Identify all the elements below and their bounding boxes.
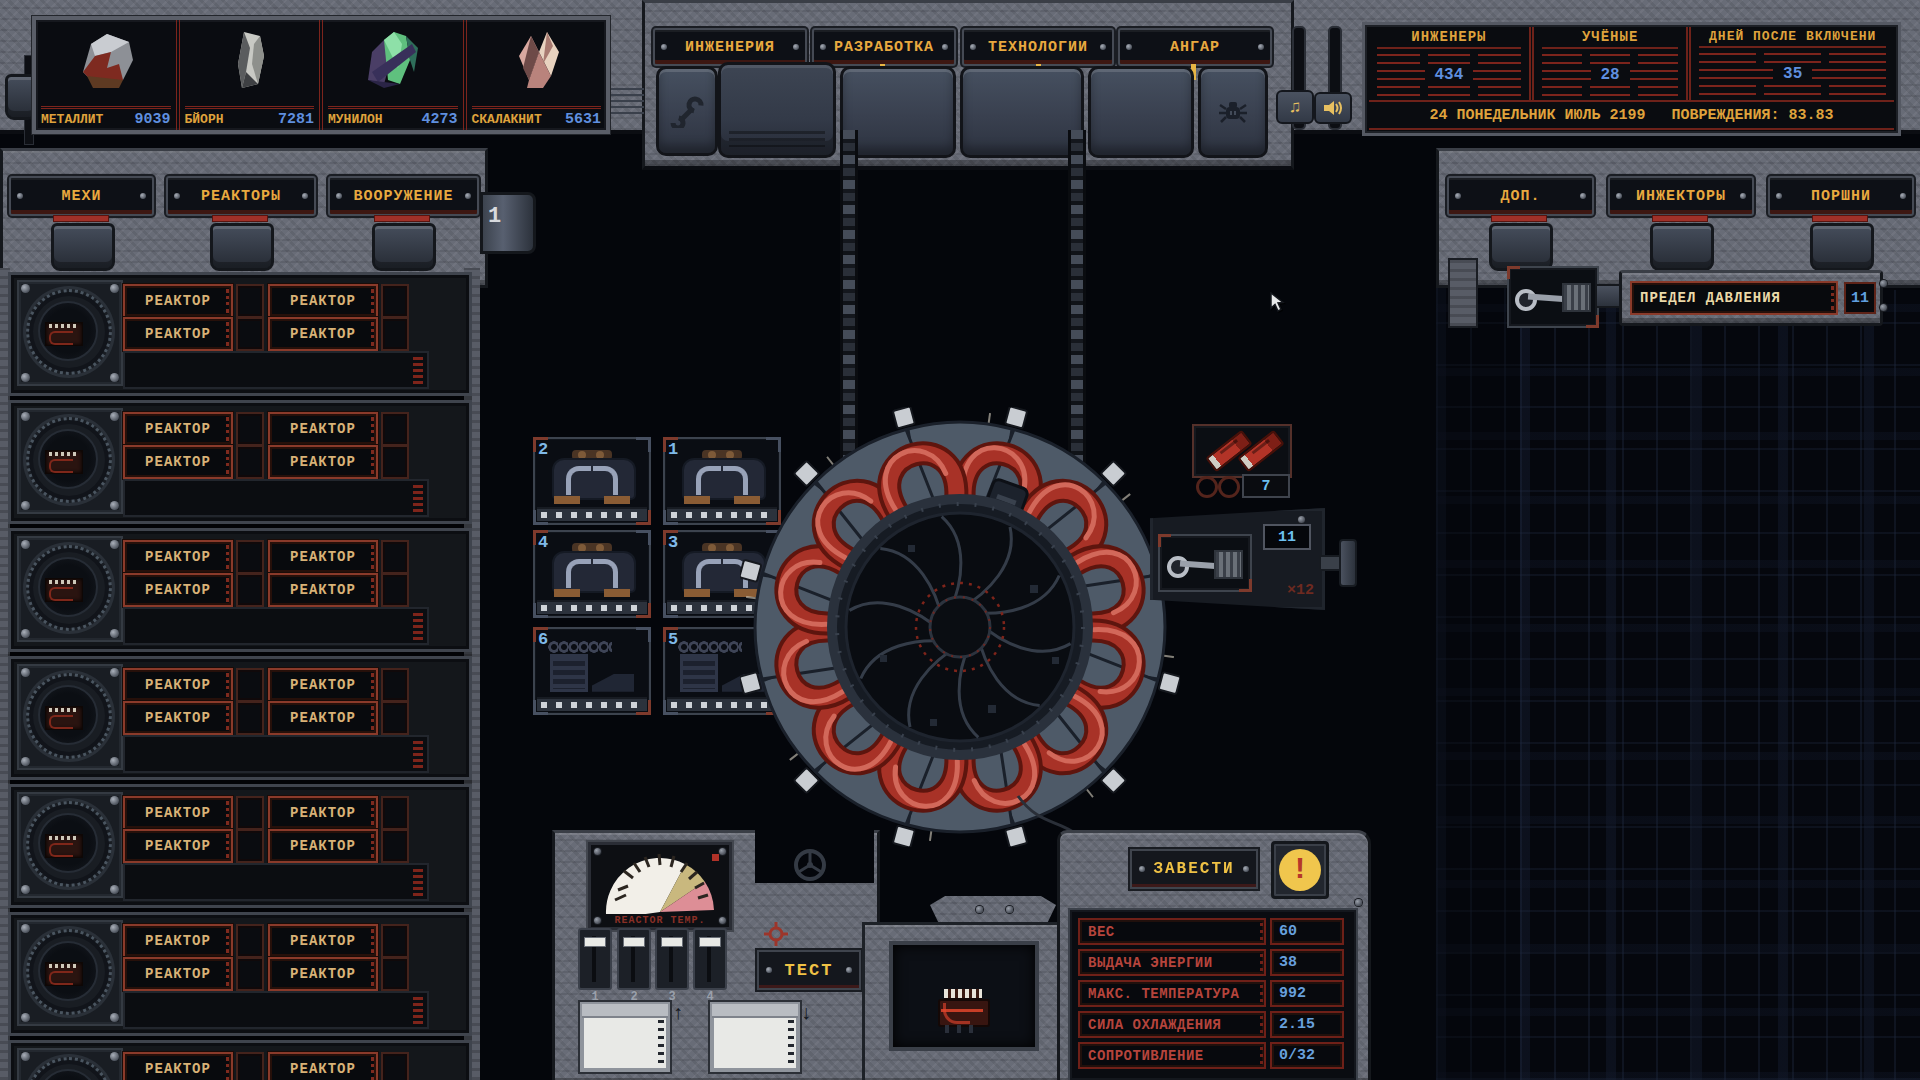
stat-value: 2.15	[1270, 1011, 1344, 1038]
injector-count: 7	[1242, 474, 1290, 498]
tab-label: ВООРУЖЕНИЕ	[353, 188, 453, 205]
reactor-thumbnail-icon	[45, 322, 83, 346]
monitor-screen	[889, 941, 1039, 1051]
slot-connector	[236, 957, 264, 991]
slot-connector	[381, 284, 409, 318]
tab-lamp	[1812, 215, 1868, 222]
reactor-row-tray	[123, 607, 429, 645]
sound-toggle-button[interactable]	[1314, 92, 1352, 124]
key-item-icon	[1165, 545, 1243, 581]
slot-connector	[236, 924, 264, 958]
lever-switch-2[interactable]: 2	[617, 928, 651, 990]
slot-connector	[381, 1052, 409, 1080]
slot-connector	[381, 540, 409, 574]
tab-lamp	[212, 215, 268, 222]
reactor-slot-button[interactable]: РЕАКТОР	[123, 668, 233, 702]
key-item-frame	[1158, 534, 1252, 592]
resource-value: 4273	[421, 111, 457, 128]
reactor-slot-label: РЕАКТОР	[145, 933, 211, 949]
reactor-slot-button[interactable]: РЕАКТОР	[123, 829, 233, 863]
reactor-slot-label: РЕАКТОР	[290, 1061, 356, 1077]
resource-name: СКАЛАКНИТ	[472, 112, 542, 127]
background-machinery-strip	[1436, 286, 1520, 1080]
engineers-label: ИНЖЕНЕРЫ	[1377, 29, 1521, 49]
reactor-row: РЕАКТОР РЕАКТОР РЕАКТОР РЕАКТОР	[8, 400, 472, 524]
slot-connector	[236, 540, 264, 574]
music-toggle-button[interactable]: ♫	[1276, 90, 1314, 124]
damage-label: ПОВРЕЖДЕНИЯ:	[1671, 107, 1779, 124]
lever-switch-4[interactable]: 4	[693, 928, 727, 990]
resource-skalaknit[interactable]: СКАЛАКНИТ 5631	[467, 20, 607, 130]
scientists-column: УЧЁНЫЕ 28	[1534, 27, 1692, 100]
reactor-slot-button[interactable]: РЕАКТОР	[268, 540, 378, 574]
days-label: ДНЕЙ ПОСЛЕ ВКЛЮЧЕНИ	[1699, 29, 1886, 48]
warning-icon: !	[1279, 849, 1321, 891]
tab-technologies[interactable]: ТЕХНОЛОГИИ	[962, 28, 1114, 66]
slot-connector	[381, 668, 409, 702]
slot-connector	[236, 829, 264, 863]
reactor-portrait[interactable]	[17, 536, 123, 642]
valve-wheel-icon[interactable]	[788, 846, 832, 884]
reactor-slot-label: РЕАКТОР	[290, 933, 356, 949]
reactor-slot-button[interactable]: РЕАКТОР	[268, 573, 378, 607]
reactor-stats-table: ВЕС 60 ВЫДАЧА ЭНЕРГИИ 38 МАКС. ТЕМПЕРАТУ…	[1068, 908, 1358, 1080]
reactor-row: РЕАКТОР РЕАКТОР РЕАКТОР РЕАКТОР	[8, 912, 472, 1036]
slot-connector	[236, 1052, 264, 1080]
tab-reactors[interactable]: РЕАКТОРЫ	[166, 176, 316, 216]
tab-hangar[interactable]: АНГАР	[1118, 28, 1272, 66]
reactor-slot-button[interactable]: РЕАКТОР	[268, 317, 378, 351]
slot-connector	[381, 445, 409, 479]
speaker-icon	[1323, 100, 1343, 116]
scientists-label: УЧЁНЫЕ	[1542, 29, 1679, 49]
reactor-thumbnail-icon	[45, 834, 83, 858]
lever-switch-3[interactable]: 3	[655, 928, 689, 990]
reactor-slot-button[interactable]: РЕАКТОР	[123, 957, 233, 991]
component-slot[interactable]: 2	[533, 437, 651, 525]
resource-bjorn[interactable]: БЙОРН 7281	[180, 20, 324, 130]
engine-component-icon	[546, 450, 638, 506]
tab-label: ИНЖЕНЕРИЯ	[685, 39, 775, 56]
key-multiplier: ×12	[1287, 582, 1314, 599]
slot-connector	[381, 317, 409, 351]
resource-name: БЙОРН	[185, 112, 224, 127]
target-indicator-icon	[764, 922, 788, 946]
reactor-portrait[interactable]	[17, 408, 123, 514]
damage-value: 83.83	[1789, 107, 1834, 124]
slot-track	[537, 600, 647, 614]
reactor-slot-label: РЕАКТОР	[145, 293, 211, 309]
mouse-cursor	[1270, 292, 1286, 314]
stat-value: 60	[1270, 918, 1344, 945]
reactor-slot-button[interactable]: РЕАКТОР	[268, 796, 378, 830]
reactor-slot-label: РЕАКТОР	[290, 326, 356, 342]
slot-connector	[236, 445, 264, 479]
resource-name: МУНИЛОН	[328, 112, 383, 127]
reactor-slot-label: РЕАКТОР	[290, 293, 356, 309]
reactor-slot-button[interactable]: РЕАКТОР	[268, 924, 378, 958]
slot-track	[537, 697, 647, 711]
reactor-slot-label: РЕАКТОР	[145, 549, 211, 565]
reactor-slot-label: РЕАКТОР	[290, 549, 356, 565]
tool-button-3[interactable]	[960, 66, 1084, 158]
tab-pull-handle[interactable]	[1810, 223, 1874, 271]
tab-label: ИНЖЕКТОРЫ	[1636, 188, 1726, 205]
reactor-row: РЕАКТОР РЕАКТОР РЕАКТОР РЕАКТОР	[8, 528, 472, 652]
game-date: 24 ПОНЕДЕЛЬНИК ИЮЛЬ 2199	[1429, 107, 1645, 124]
resource-value: 7281	[278, 111, 314, 128]
reactor-portrait[interactable]	[17, 664, 123, 770]
slot-connector	[381, 957, 409, 991]
tab-label: ПОРШНИ	[1811, 188, 1871, 205]
tab-lamp	[374, 215, 430, 222]
warning-button[interactable]: !	[1271, 841, 1329, 899]
tab-pull-handle[interactable]	[372, 223, 436, 271]
reactor-row-tray	[123, 351, 429, 389]
reactor-portrait[interactable]	[17, 1048, 123, 1080]
reactor-slot-button[interactable]: РЕАКТОР	[268, 445, 378, 479]
background-machinery	[1520, 290, 1920, 1080]
stat-label: ВЫДАЧА ЭНЕРГИИ	[1078, 949, 1266, 976]
coil-component-icon	[546, 640, 638, 696]
reactor-workshop-screen: МЕТАЛЛИТ 9039 БЙОРН 7281	[0, 0, 1920, 1080]
tab-label: ТЕХНОЛОГИИ	[988, 39, 1088, 56]
page-number: 1	[488, 204, 501, 229]
tab-lamp	[1652, 215, 1708, 222]
reactor-row: РЕАКТОР РЕАКТОР РЕАКТОР РЕАКТОР	[8, 784, 472, 908]
slot-connector	[236, 796, 264, 830]
component-slot[interactable]: 4	[533, 530, 651, 618]
injector-supply-box[interactable]	[1192, 424, 1292, 478]
reactor-temp-gauge: REACTOR TEMP.	[588, 842, 732, 930]
reactor-slot-button[interactable]: РЕАКТОР	[268, 957, 378, 991]
skalaknit-shard-icon	[507, 28, 565, 94]
reactor-portrait[interactable]	[17, 280, 123, 386]
munilon-crystal-icon	[360, 28, 426, 94]
reactor-slot-label: РЕАКТОР	[290, 582, 356, 598]
stat-value: 38	[1270, 949, 1344, 976]
slot-connector	[381, 412, 409, 446]
start-button-label: ЗАВЕСТИ	[1153, 860, 1234, 878]
engineers-column: ИНЖЕНЕРЫ 434	[1369, 27, 1534, 100]
tab-engineering[interactable]: ИНЖЕНЕРИЯ	[653, 28, 807, 66]
reactor-slot-button[interactable]: РЕАКТОР	[268, 284, 378, 318]
tab-pull-handle[interactable]	[1489, 223, 1553, 271]
days-value: 35	[1781, 68, 1804, 80]
reactor-thumbnail-icon	[45, 706, 83, 730]
key-item-wedge[interactable]: 11 ×12	[1150, 508, 1325, 610]
reactor-slot-label: РЕАКТОР	[145, 677, 211, 693]
reactor-slot-label: РЕАКТОР	[145, 1061, 211, 1077]
injector-item-box[interactable]	[1507, 266, 1599, 328]
gasket-icon	[1218, 476, 1240, 498]
side-strip	[1448, 258, 1478, 328]
date-damage-line: 24 ПОНЕДЕЛЬНИК ИЮЛЬ 2199 ПОВРЕЖДЕНИЯ: 83…	[1369, 100, 1894, 130]
resource-value: 9039	[134, 111, 170, 128]
reactor-slot-label: РЕАКТОР	[145, 838, 211, 854]
key-item-handle[interactable]	[1319, 539, 1355, 583]
injector-count-value: 7	[1261, 478, 1270, 495]
reactor-slot-label: РЕАКТОР	[290, 421, 356, 437]
stat-value: 992	[1270, 980, 1344, 1007]
reactor-thumbnail-icon	[45, 962, 83, 986]
slot-connector	[236, 284, 264, 318]
tab-label: ДОП.	[1500, 188, 1540, 205]
gauge-dial	[594, 848, 726, 914]
tool-button-4[interactable]	[1088, 66, 1194, 158]
slot-connector	[236, 668, 264, 702]
tab-label: МЕХИ	[61, 188, 101, 205]
start-button[interactable]: ЗАВЕСТИ	[1130, 849, 1258, 889]
slot-connector	[381, 573, 409, 607]
wrench-tool-button[interactable]	[656, 66, 718, 156]
metallit-ore-icon	[75, 28, 137, 94]
gauge-label: REACTOR TEMP.	[591, 915, 729, 926]
reactor-row: РЕАКТОР РЕАКТОР РЕАКТОР РЕАКТОР	[8, 272, 472, 396]
bjorn-ore-icon	[218, 28, 280, 94]
lever-switch-1[interactable]: 1	[578, 928, 612, 990]
resource-metallit[interactable]: МЕТАЛЛИТ 9039	[36, 20, 180, 130]
tab-pull-handle[interactable]	[1650, 223, 1714, 271]
resource-munilon[interactable]: МУНИЛОН 4273	[323, 20, 467, 130]
tab-pistons[interactable]: ПОРШНИ	[1768, 176, 1914, 216]
resources-panel: МЕТАЛЛИТ 9039 БЙОРН 7281	[32, 16, 610, 134]
reactor-row-tray	[123, 863, 429, 901]
stat-label: МАКС. ТЕМПЕРАТУРА	[1078, 980, 1266, 1007]
reactor-slot-label: РЕАКТОР	[145, 421, 211, 437]
reactor-slot-button[interactable]: РЕАКТОР	[268, 1052, 378, 1080]
reactor-slot-button[interactable]: РЕАКТОР	[123, 701, 233, 735]
reactor-slot-button[interactable]: РЕАКТОР	[123, 796, 233, 830]
reactor-monitor	[862, 922, 1060, 1080]
reactor-slot-button[interactable]: РЕАКТОР	[123, 445, 233, 479]
reactor-row: РЕАКТОР РЕАКТОР РЕАКТОР РЕАКТОР	[8, 1040, 472, 1080]
reactor-slot-label: РЕАКТОР	[290, 710, 356, 726]
tab-label: РАЗРАБОТКА	[834, 39, 934, 56]
slot-connector	[236, 701, 264, 735]
gasket-icon	[1196, 476, 1218, 498]
reactor-sprite-icon	[935, 985, 991, 1033]
log-pad-right[interactable]	[710, 1002, 800, 1072]
damage-readout: ПОВРЕЖДЕНИЯ: 83.83	[1671, 107, 1833, 124]
reactor-slot-button[interactable]: РЕАКТОР	[123, 284, 233, 318]
reactor-row: РЕАКТОР РЕАКТОР РЕАКТОР РЕАКТОР	[8, 656, 472, 780]
arrow-up-icon[interactable]: ↑	[672, 1002, 684, 1025]
screw	[1880, 304, 1887, 311]
reactor-slot-label: РЕАКТОР	[290, 966, 356, 982]
wrench-icon	[670, 94, 704, 128]
tab-mechs[interactable]: МЕХИ	[9, 176, 154, 216]
tab-label: АНГАР	[1170, 39, 1220, 56]
engine-component-icon	[546, 543, 638, 599]
reactor-slot-label: РЕАКТОР	[290, 454, 356, 470]
reactor-slot-button[interactable]: РЕАКТОР	[123, 573, 233, 607]
tab-lamp	[1491, 215, 1547, 222]
reactor-slot-label: РЕАКТОР	[290, 677, 356, 693]
scientists-value: 28	[1599, 69, 1622, 81]
key-item-value-text: 11	[1278, 529, 1296, 546]
reactor-thumbnail-icon	[45, 578, 83, 602]
reactor-portrait[interactable]	[17, 920, 123, 1026]
injector-item-icon	[1513, 278, 1591, 314]
tab-lamp	[53, 215, 109, 222]
reactor-wheel[interactable]	[740, 407, 1180, 847]
reactor-slot-button[interactable]: РЕАКТОР	[268, 668, 378, 702]
tab-pull-handle[interactable]	[210, 223, 274, 271]
reactor-slot-label: РЕАКТОР	[145, 710, 211, 726]
reactor-slot-button[interactable]: РЕАКТОР	[123, 924, 233, 958]
slot-track	[537, 507, 647, 521]
reactor-slot-label: РЕАКТОР	[145, 805, 211, 821]
slot-connector	[236, 412, 264, 446]
slot-connector	[381, 829, 409, 863]
pressure-limit-row: ПРЕДЕЛ ДАВЛЕНИЯ 11	[1619, 270, 1883, 326]
page-tag[interactable]: 1	[480, 192, 536, 254]
engineers-value: 434	[1433, 69, 1466, 81]
slot-connector	[236, 317, 264, 351]
log-pad-left[interactable]	[580, 1002, 670, 1072]
tab-label: РЕАКТОРЫ	[201, 188, 281, 205]
slot-connector	[381, 701, 409, 735]
tool-button-active[interactable]	[718, 62, 836, 158]
pressure-limit-label: ПРЕДЕЛ ДАВЛЕНИЯ	[1630, 281, 1838, 315]
status-panel: ИНЖЕНЕРЫ 434 УЧЁНЫЕ 28 ДНЕЙ ПОСЛЕ ВКЛЮЧЕ…	[1362, 22, 1901, 136]
stat-label: СОПРОТИВЛЕНИЕ	[1078, 1042, 1266, 1069]
stat-label: СИЛА ОХЛАЖДЕНИЯ	[1078, 1011, 1266, 1038]
screw	[1880, 280, 1887, 287]
pressure-limit-value[interactable]: 11	[1844, 282, 1876, 314]
stat-value: 0/32	[1270, 1042, 1344, 1069]
reactor-thumbnail-icon	[45, 450, 83, 474]
reactor-slot-label: РЕАКТОР	[145, 966, 211, 982]
reactor-slot-button[interactable]: РЕАКТОР	[123, 317, 233, 351]
reactor-slot-button[interactable]: РЕАКТОР	[268, 829, 378, 863]
arrow-down-icon[interactable]: ↓	[800, 1002, 812, 1025]
tab-pull-handle[interactable]	[51, 223, 115, 271]
reactor-row-tray	[123, 735, 429, 773]
key-item-value: 11	[1263, 524, 1311, 550]
slot-connector	[381, 796, 409, 830]
resource-name: МЕТАЛЛИТ	[41, 112, 103, 127]
slot-connector	[236, 573, 264, 607]
reactor-slot-label: РЕАКТОР	[290, 805, 356, 821]
days-column: ДНЕЙ ПОСЛЕ ВКЛЮЧЕНИ 35	[1691, 27, 1894, 100]
reactor-slot-label: РЕАКТОР	[290, 838, 356, 854]
reactor-row-tray	[123, 479, 429, 517]
reactor-slot-button[interactable]: РЕАКТОР	[268, 701, 378, 735]
reactor-slot-button[interactable]: РЕАКТОР	[123, 540, 233, 574]
slot-connector	[381, 924, 409, 958]
reactor-slot-button[interactable]: РЕАКТОР	[123, 1052, 233, 1080]
tab-injectors[interactable]: ИНЖЕКТОРЫ	[1608, 176, 1754, 216]
reactor-row-tray	[123, 991, 429, 1029]
tab-development[interactable]: РАЗРАБОТКА	[812, 28, 956, 66]
tab-weapons[interactable]: ВООРУЖЕНИЕ	[328, 176, 479, 216]
resource-value: 5631	[565, 111, 601, 128]
bug-icon	[1218, 99, 1248, 125]
bug-report-button[interactable]	[1198, 66, 1268, 158]
reactor-slot-label: РЕАКТОР	[145, 326, 211, 342]
reactor-slot-button[interactable]: РЕАКТОР	[268, 412, 378, 446]
reactor-slot-label: РЕАКТОР	[145, 454, 211, 470]
reactor-slot-button[interactable]: РЕАКТОР	[123, 412, 233, 446]
tab-extra[interactable]: ДОП.	[1447, 176, 1594, 216]
test-button[interactable]: ТЕСТ	[757, 950, 861, 990]
component-slot[interactable]: 6	[533, 627, 651, 715]
reactor-slot-label: РЕАКТОР	[145, 582, 211, 598]
screw	[1298, 516, 1305, 523]
stat-label: ВЕС	[1078, 918, 1266, 945]
reactor-portrait[interactable]	[17, 792, 123, 898]
music-note-icon: ♫	[1290, 98, 1300, 117]
test-button-label: ТЕСТ	[785, 961, 834, 980]
reactor-stats-panel: ЗАВЕСТИ ! ВЕС 60 ВЫДАЧА ЭНЕРГИИ 38 МАКС.…	[1057, 830, 1371, 1080]
